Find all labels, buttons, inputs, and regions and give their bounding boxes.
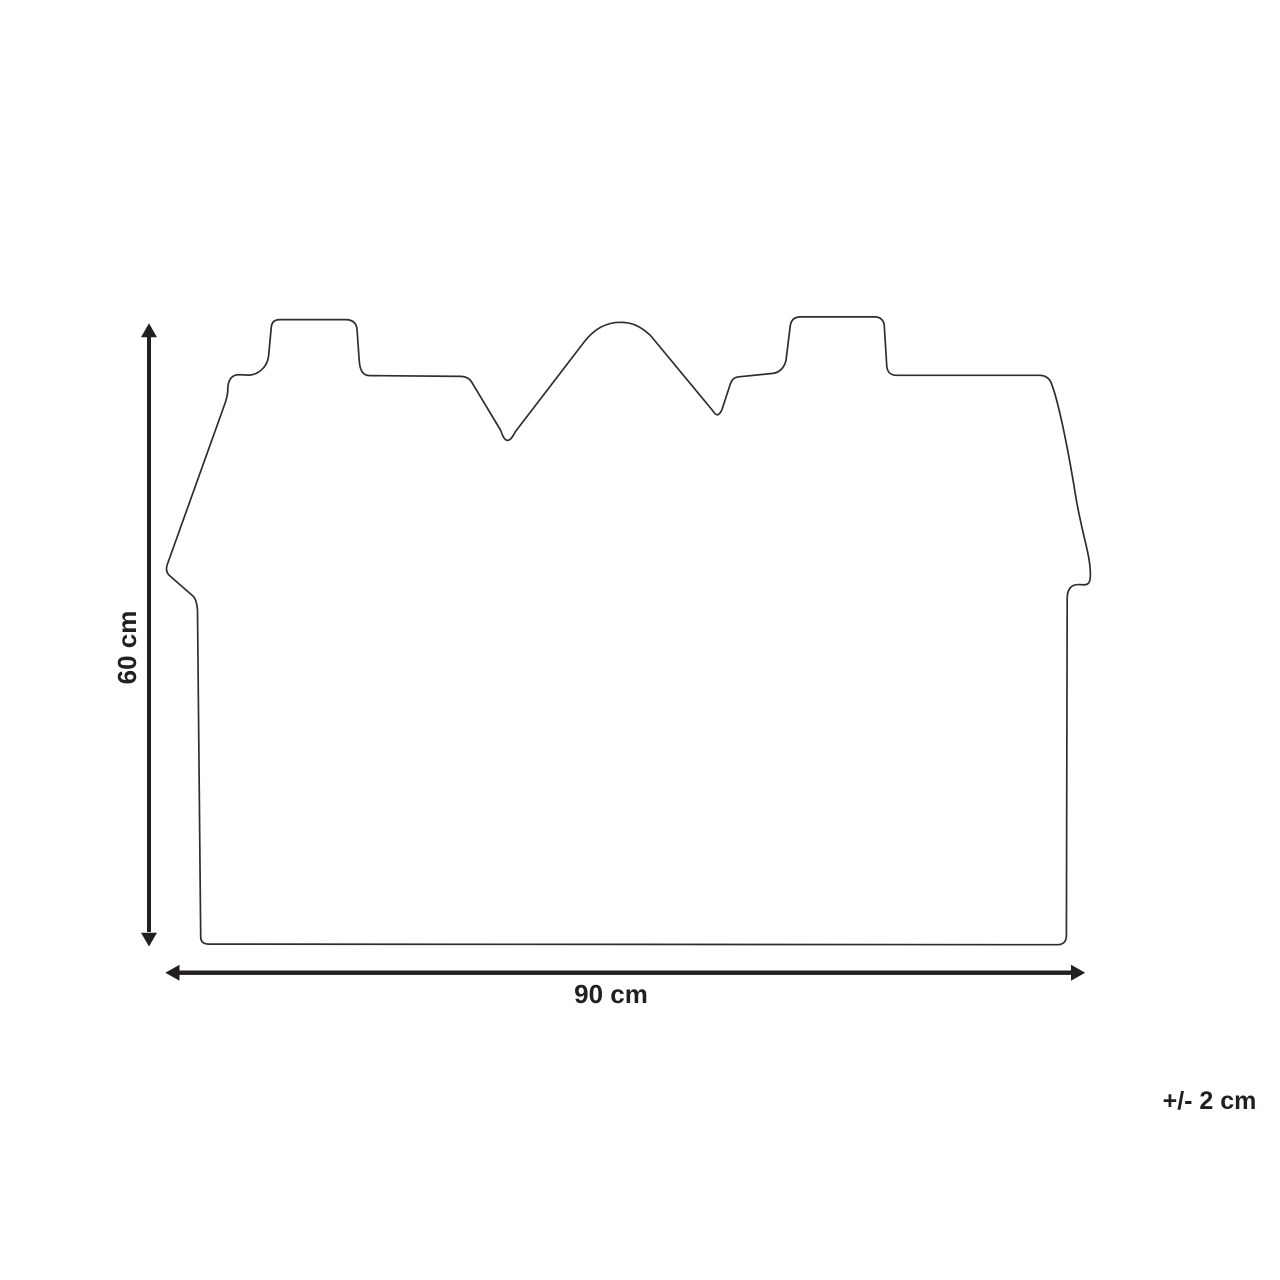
svg-text:90 cm: 90 cm [574,979,648,1009]
svg-text:+/- 2 cm: +/- 2 cm [1163,1087,1257,1115]
svg-text:60 cm: 60 cm [112,611,142,685]
